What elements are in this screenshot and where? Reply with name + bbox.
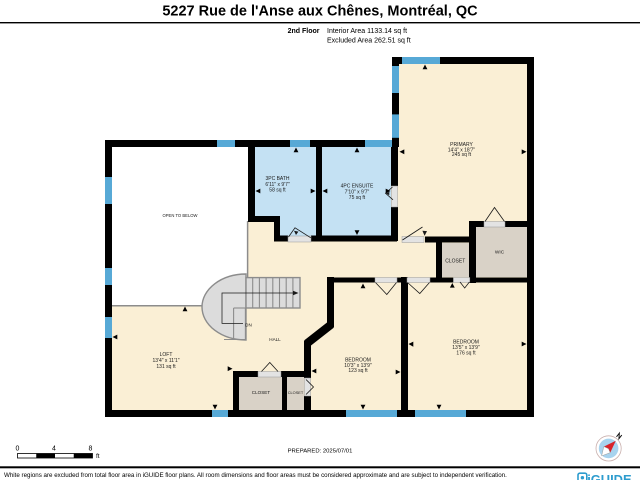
svg-text:CLOSET: CLOSET [288,390,304,395]
svg-text:4: 4 [52,446,56,453]
svg-text:Excluded Area 262.51 sq ft: Excluded Area 262.51 sq ft [327,38,411,45]
svg-text:ft: ft [96,453,100,460]
svg-text:OPEN TO BELOW: OPEN TO BELOW [163,213,198,218]
svg-text:Interior Area 1133.14 sq ft: Interior Area 1133.14 sq ft [327,28,407,35]
svg-text:0: 0 [16,446,20,453]
svg-text:123 sq ft: 123 sq ft [348,368,368,374]
svg-text:PREPARED: 2025/07/01: PREPARED: 2025/07/01 [288,449,353,455]
svg-text:131 sq ft: 131 sq ft [156,364,176,370]
svg-text:245 sq ft: 245 sq ft [452,152,472,158]
svg-text:iGUIDE: iGUIDE [587,472,632,480]
svg-text:8: 8 [89,446,93,453]
svg-text:75 sq ft: 75 sq ft [349,195,366,201]
svg-text:CLOSET: CLOSET [252,390,271,395]
svg-text:DN: DN [245,323,252,328]
svg-text:2nd Floor: 2nd Floor [288,28,320,35]
svg-text:58 sq ft: 58 sq ft [269,187,286,193]
svg-text:5227 Rue de l'Anse aux Chênes,: 5227 Rue de l'Anse aux Chênes, Montréal,… [162,4,478,20]
svg-text:WIC: WIC [495,250,505,256]
svg-text:CLOSET: CLOSET [445,258,465,264]
svg-text:HALL: HALL [269,337,281,342]
svg-text:176 sq ft: 176 sq ft [456,351,476,357]
svg-text:White regions are excluded fro: White regions are excluded from total fl… [4,472,507,479]
